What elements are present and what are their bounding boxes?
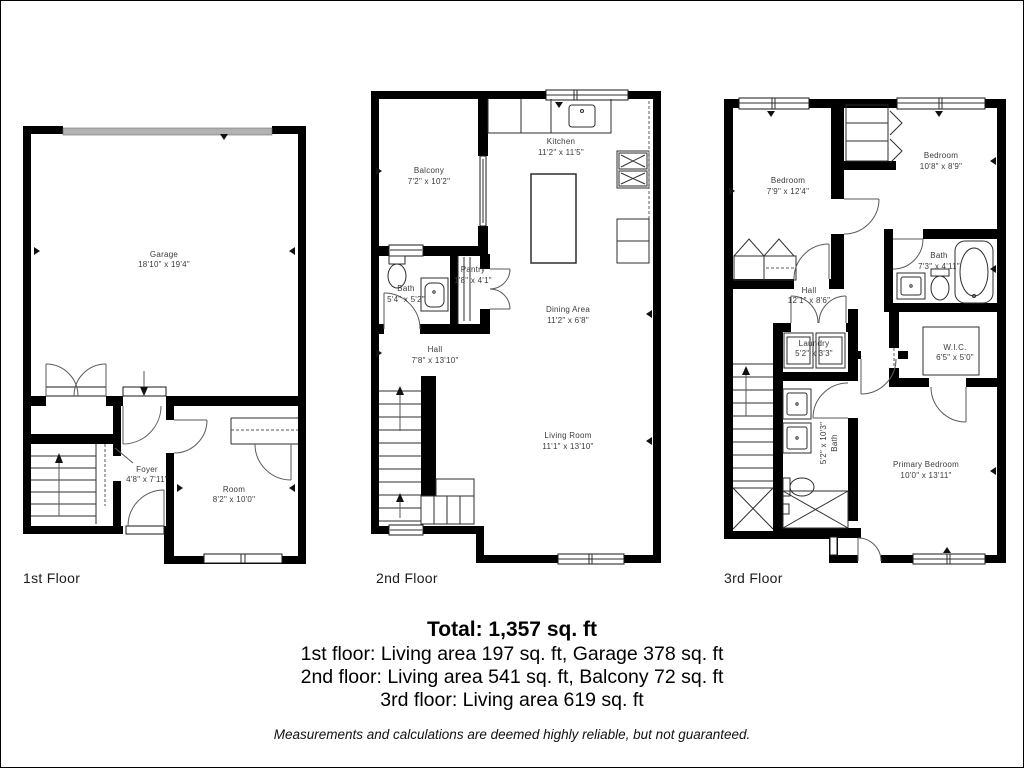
floor1-area-text: 1st floor: Living area 197 sq. ft, Garag… [1, 643, 1023, 666]
bath-right-label: Bath [930, 251, 947, 260]
pantry-label: Pantry [461, 265, 486, 274]
kitchen-label: Kitchen [547, 137, 575, 146]
hall-dims: 12'1" x 8'6" [788, 296, 830, 305]
floor3-area-text: 3rd floor: Living area 619 sq. ft [1, 689, 1023, 712]
bath-right-dims: 7'3" x 4'11" [918, 262, 960, 271]
bath-vertical-label: Bath [830, 434, 839, 451]
floor2-area-text: 2nd floor: Living area 541 sq. ft, Balco… [1, 666, 1023, 689]
stove-icon [617, 151, 649, 188]
balcony-label: Balcony [414, 166, 444, 175]
disclaimer-text: Measurements and calculations are deemed… [1, 727, 1023, 742]
floor-label-1st: 1st Floor [23, 570, 80, 586]
dining-dims: 11'2" x 6'8" [547, 316, 589, 325]
bedroom-right-dims: 10'8" x 8'9" [920, 162, 962, 171]
kitchen-island [531, 174, 576, 263]
living-room-label: Living Room [544, 431, 591, 440]
sink-icon [569, 105, 595, 127]
hall-label: Hall [802, 286, 817, 295]
floor-plan-1st: Garage 18'10" x 19'4" Foyer 4'8" x 7'11"… [23, 126, 306, 564]
total-area-text: Total: 1,357 sq. ft [1, 617, 1023, 643]
bath-vertical-dims: 5'2" x 10'3" [819, 422, 828, 464]
laundry-dims: 5'2" x 3'3" [795, 349, 833, 358]
floor-plan-3rd: Bedroom 7'9" x 12'4" Bedroom 10'8" x 8'9… [724, 98, 1006, 564]
laundry-label: Laundry [799, 339, 830, 348]
floor-plan-2nd: Balcony 7'2" x 10'2" Kitchen 11'2" x 11'… [371, 90, 661, 564]
bedroom-right-label: Bedroom [924, 151, 958, 160]
garage-door [63, 128, 272, 135]
dimension-arrow-icons [376, 102, 652, 445]
toilet-icon [389, 256, 405, 264]
stairs-icon [733, 364, 773, 529]
room-labels: Garage 18'10" x 19'4" Foyer 4'8" x 7'11"… [126, 250, 255, 504]
floor-label-3rd: 3rd Floor [724, 570, 783, 586]
balcony-dims: 7'2" x 10'2" [408, 177, 450, 186]
floor-plan-sheet: Garage 18'10" x 19'4" Foyer 4'8" x 7'11"… [0, 0, 1024, 768]
dining-label: Dining Area [546, 305, 590, 314]
bath-label: Bath [397, 284, 414, 293]
dimension-arrow-icons [729, 111, 996, 553]
shower-icon [783, 491, 848, 528]
foyer-label: Foyer [136, 465, 158, 474]
wic-dims: 6'5" x 5'0" [936, 353, 974, 362]
garage-label: Garage [150, 250, 178, 259]
kitchen-counter [488, 99, 649, 263]
sliding-door-icon [480, 156, 486, 226]
living-room-dims: 11'1" x 13'10" [542, 442, 593, 451]
foyer-dims: 4'8" x 7'11" [126, 475, 168, 484]
bath-dims: 5'4" x 5'2" [387, 295, 425, 304]
bedroom-closet [734, 239, 796, 280]
walls [724, 99, 1006, 563]
bedroom-left-label: Bedroom [771, 176, 805, 185]
closet-shelves [846, 105, 902, 163]
bathtub-icon [955, 241, 993, 303]
area-summary: Total: 1,357 sq. ft 1st floor: Living ar… [1, 617, 1023, 742]
bedroom-left-dims: 7'9" x 12'4" [767, 187, 809, 196]
wic-label: W.I.C. [943, 343, 966, 352]
floor-label-2nd: 2nd Floor [376, 570, 438, 586]
room-dims: 8'2" x 10'0" [213, 495, 255, 504]
primary-bedroom-dims: 10'0" x 13'11" [900, 471, 951, 480]
hall-dims: 7'8" x 13'10" [411, 356, 458, 365]
stairs-icon [31, 444, 105, 524]
primary-bedroom-label: Primary Bedroom [893, 460, 959, 469]
pantry-dims: 1'8" x 4'1" [454, 276, 492, 285]
room-label: Room [223, 485, 245, 494]
kitchen-dims: 11'2" x 11'5" [538, 148, 584, 157]
closet [231, 418, 298, 480]
hall-label: Hall [428, 345, 443, 354]
garage-dims: 18'10" x 19'4" [138, 260, 190, 269]
bath-fixtures-vertical [783, 389, 848, 528]
